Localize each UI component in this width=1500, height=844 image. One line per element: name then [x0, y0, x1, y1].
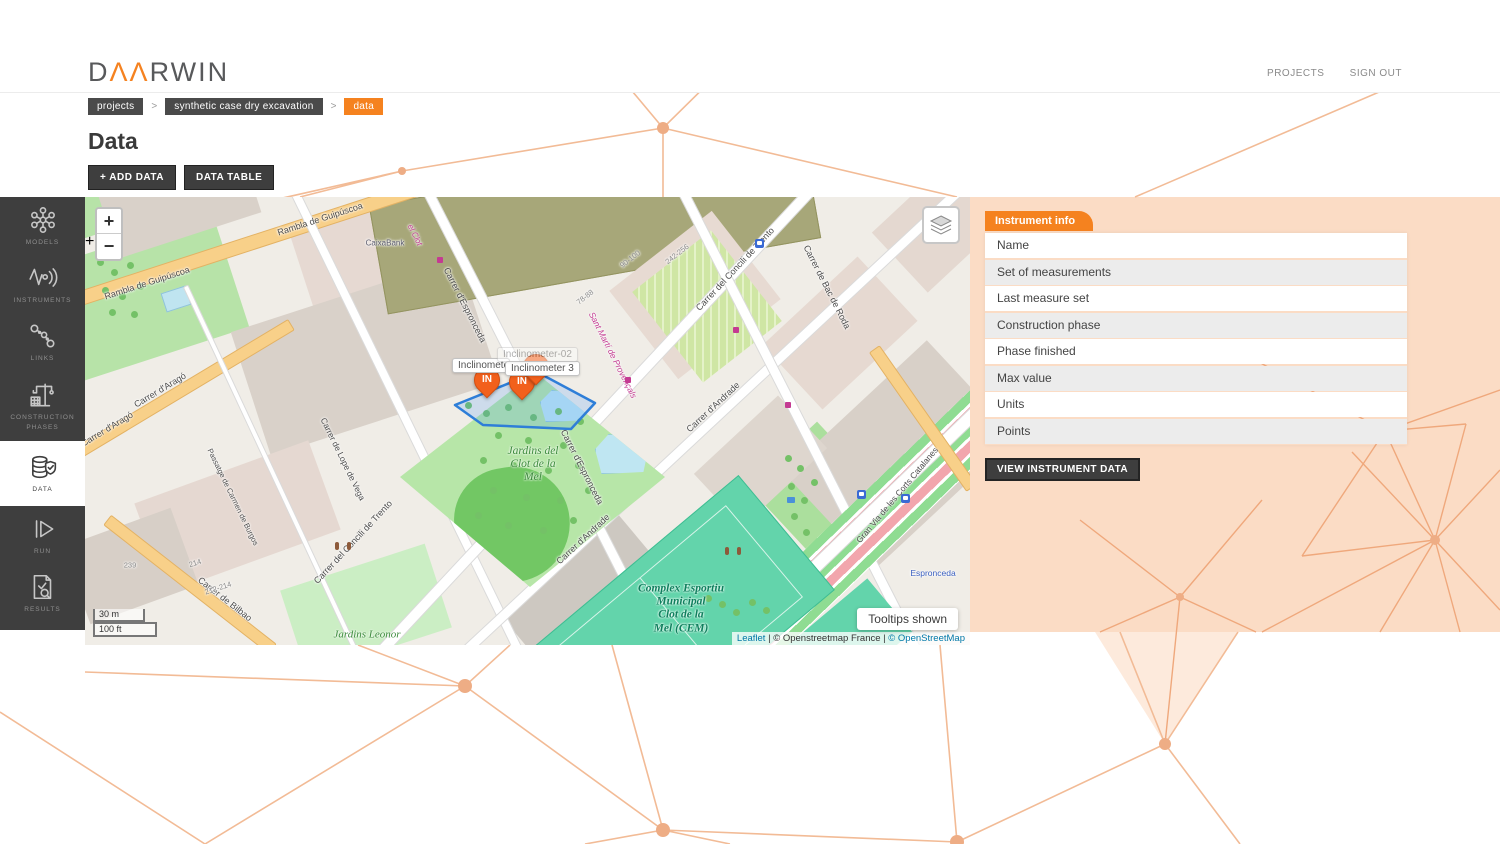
- info-row-units[interactable]: Units: [985, 392, 1407, 417]
- breadcrumb-separator: >: [151, 101, 157, 112]
- map-trees: [785, 455, 792, 462]
- shop-icon: [733, 327, 739, 333]
- sidebar: MODELS INSTRUMENTS LINKS CONSTRUCTION PH…: [0, 197, 85, 630]
- info-row-points[interactable]: Points: [985, 419, 1407, 444]
- map-area-label: Jardins Leonor: [333, 629, 400, 642]
- layers-control[interactable]: [922, 206, 960, 244]
- chain-nodes-icon: [28, 321, 58, 351]
- sidebar-label: CONSTRUCTION PHASES: [4, 413, 82, 433]
- breadcrumb-separator: >: [331, 101, 337, 112]
- sidebar-label: RESULTS: [4, 605, 82, 615]
- instrument-info-table: Name Set of measurements Last measure se…: [985, 233, 1407, 445]
- database-shield-icon: [28, 452, 58, 482]
- play-icon: [28, 514, 58, 544]
- shop-icon: [785, 402, 791, 408]
- breadcrumb-project[interactable]: synthetic case dry excavation: [165, 98, 322, 115]
- fountain-icon: [787, 497, 795, 503]
- bus-icon: [755, 239, 764, 248]
- map-canvas[interactable]: Rambla de GuipúscoaRambla de GuipúscoaCa…: [85, 197, 970, 645]
- info-row-last-measure-set[interactable]: Last measure set: [985, 286, 1407, 311]
- info-row-max-value[interactable]: Max value: [985, 366, 1407, 391]
- shop-icon: [625, 377, 631, 383]
- person-icon: [335, 542, 339, 550]
- sidebar-label: INSTRUMENTS: [4, 296, 82, 306]
- map-street-label: 239: [124, 561, 137, 570]
- view-instrument-data-button[interactable]: VIEW INSTRUMENT DATA: [985, 458, 1140, 481]
- map-street-label: Espronceda: [910, 568, 955, 578]
- marker-tooltip: Inclinometer-02: [497, 347, 578, 362]
- app-logo[interactable]: DΛΛRWIN: [88, 57, 229, 88]
- map-zoom-control: + −: [95, 207, 123, 261]
- scale-control: 30 m 100 ft: [93, 609, 157, 637]
- report-check-icon: [28, 572, 58, 602]
- sidebar-item-models[interactable]: MODELS: [0, 197, 85, 255]
- sidebar-label: RUN: [4, 547, 82, 557]
- data-table-button[interactable]: DATA TABLE: [184, 165, 274, 190]
- scale-metric: 30 m: [93, 609, 145, 622]
- sidebar-item-run[interactable]: RUN: [0, 506, 85, 564]
- bus-icon: [901, 494, 910, 503]
- shop-icon: [437, 257, 443, 263]
- map-trees: [465, 402, 472, 409]
- sidebar-item-results[interactable]: RESULTS: [0, 564, 85, 622]
- sidebar-item-construction-phases[interactable]: CONSTRUCTION PHASES: [0, 371, 85, 441]
- sidebar-item-links[interactable]: LINKS: [0, 313, 85, 371]
- breadcrumb: projects > synthetic case dry excavation…: [88, 98, 383, 115]
- page-actions: + ADD DATA DATA TABLE: [88, 165, 274, 190]
- leaflet-link[interactable]: Leaflet: [737, 633, 766, 644]
- sidebar-label: MODELS: [4, 238, 82, 248]
- map-area-label: Jardins del Clot de la Mel: [508, 445, 559, 485]
- tooltips-toggle[interactable]: Tooltips shown: [857, 608, 958, 630]
- map-street-label: CaixaBank: [366, 239, 405, 248]
- map-area-label: Complex Esportiu Municipal Clot de la Me…: [638, 583, 724, 636]
- app-header: DΛΛRWIN PROJECTS SIGN OUT: [0, 0, 1500, 93]
- page-title: Data: [88, 128, 138, 155]
- bus-icon: [857, 490, 866, 499]
- sidebar-label: DATA: [4, 485, 82, 495]
- sidebar-item-data[interactable]: DATA: [0, 441, 85, 506]
- marker-tooltip: Inclinometer 3: [505, 361, 580, 376]
- nav-projects[interactable]: PROJECTS: [1267, 68, 1324, 79]
- layers-icon: [929, 213, 953, 237]
- person-icon: [347, 542, 351, 550]
- instrument-info-header: Instrument info: [985, 211, 1093, 231]
- crane-icon: [28, 380, 58, 410]
- info-row-construction-phase[interactable]: Construction phase: [985, 313, 1407, 338]
- info-row-name[interactable]: Name: [985, 233, 1407, 258]
- map-street-label: 78-88: [575, 288, 596, 307]
- osm-link[interactable]: © OpenStreetMap: [888, 633, 965, 644]
- osm-france-credit[interactable]: © Openstreetmap France: [773, 633, 880, 644]
- info-row-phase-finished[interactable]: Phase finished: [985, 339, 1407, 364]
- add-data-button[interactable]: + ADD DATA: [88, 165, 176, 190]
- waveform-icon: [28, 263, 58, 293]
- person-icon: [737, 547, 741, 555]
- network-icon: [28, 205, 58, 235]
- top-nav: PROJECTS SIGN OUT: [1245, 68, 1402, 79]
- map-street-label: Sant Martí de Provençals: [587, 310, 639, 400]
- map-attribution: Leaflet | © Openstreetmap France | © Ope…: [732, 632, 970, 645]
- sidebar-label: LINKS: [4, 354, 82, 364]
- info-row-set-of-measurements[interactable]: Set of measurements: [985, 260, 1407, 285]
- sidebar-item-instruments[interactable]: INSTRUMENTS: [0, 255, 85, 313]
- zoom-out-button[interactable]: −: [97, 234, 121, 259]
- scale-imperial: 100 ft: [93, 622, 157, 637]
- zoom-in-button[interactable]: +: [97, 209, 121, 234]
- breadcrumb-current[interactable]: data: [344, 98, 383, 115]
- nav-signout[interactable]: SIGN OUT: [1350, 68, 1402, 79]
- breadcrumb-projects[interactable]: projects: [88, 98, 143, 115]
- person-icon: [725, 547, 729, 555]
